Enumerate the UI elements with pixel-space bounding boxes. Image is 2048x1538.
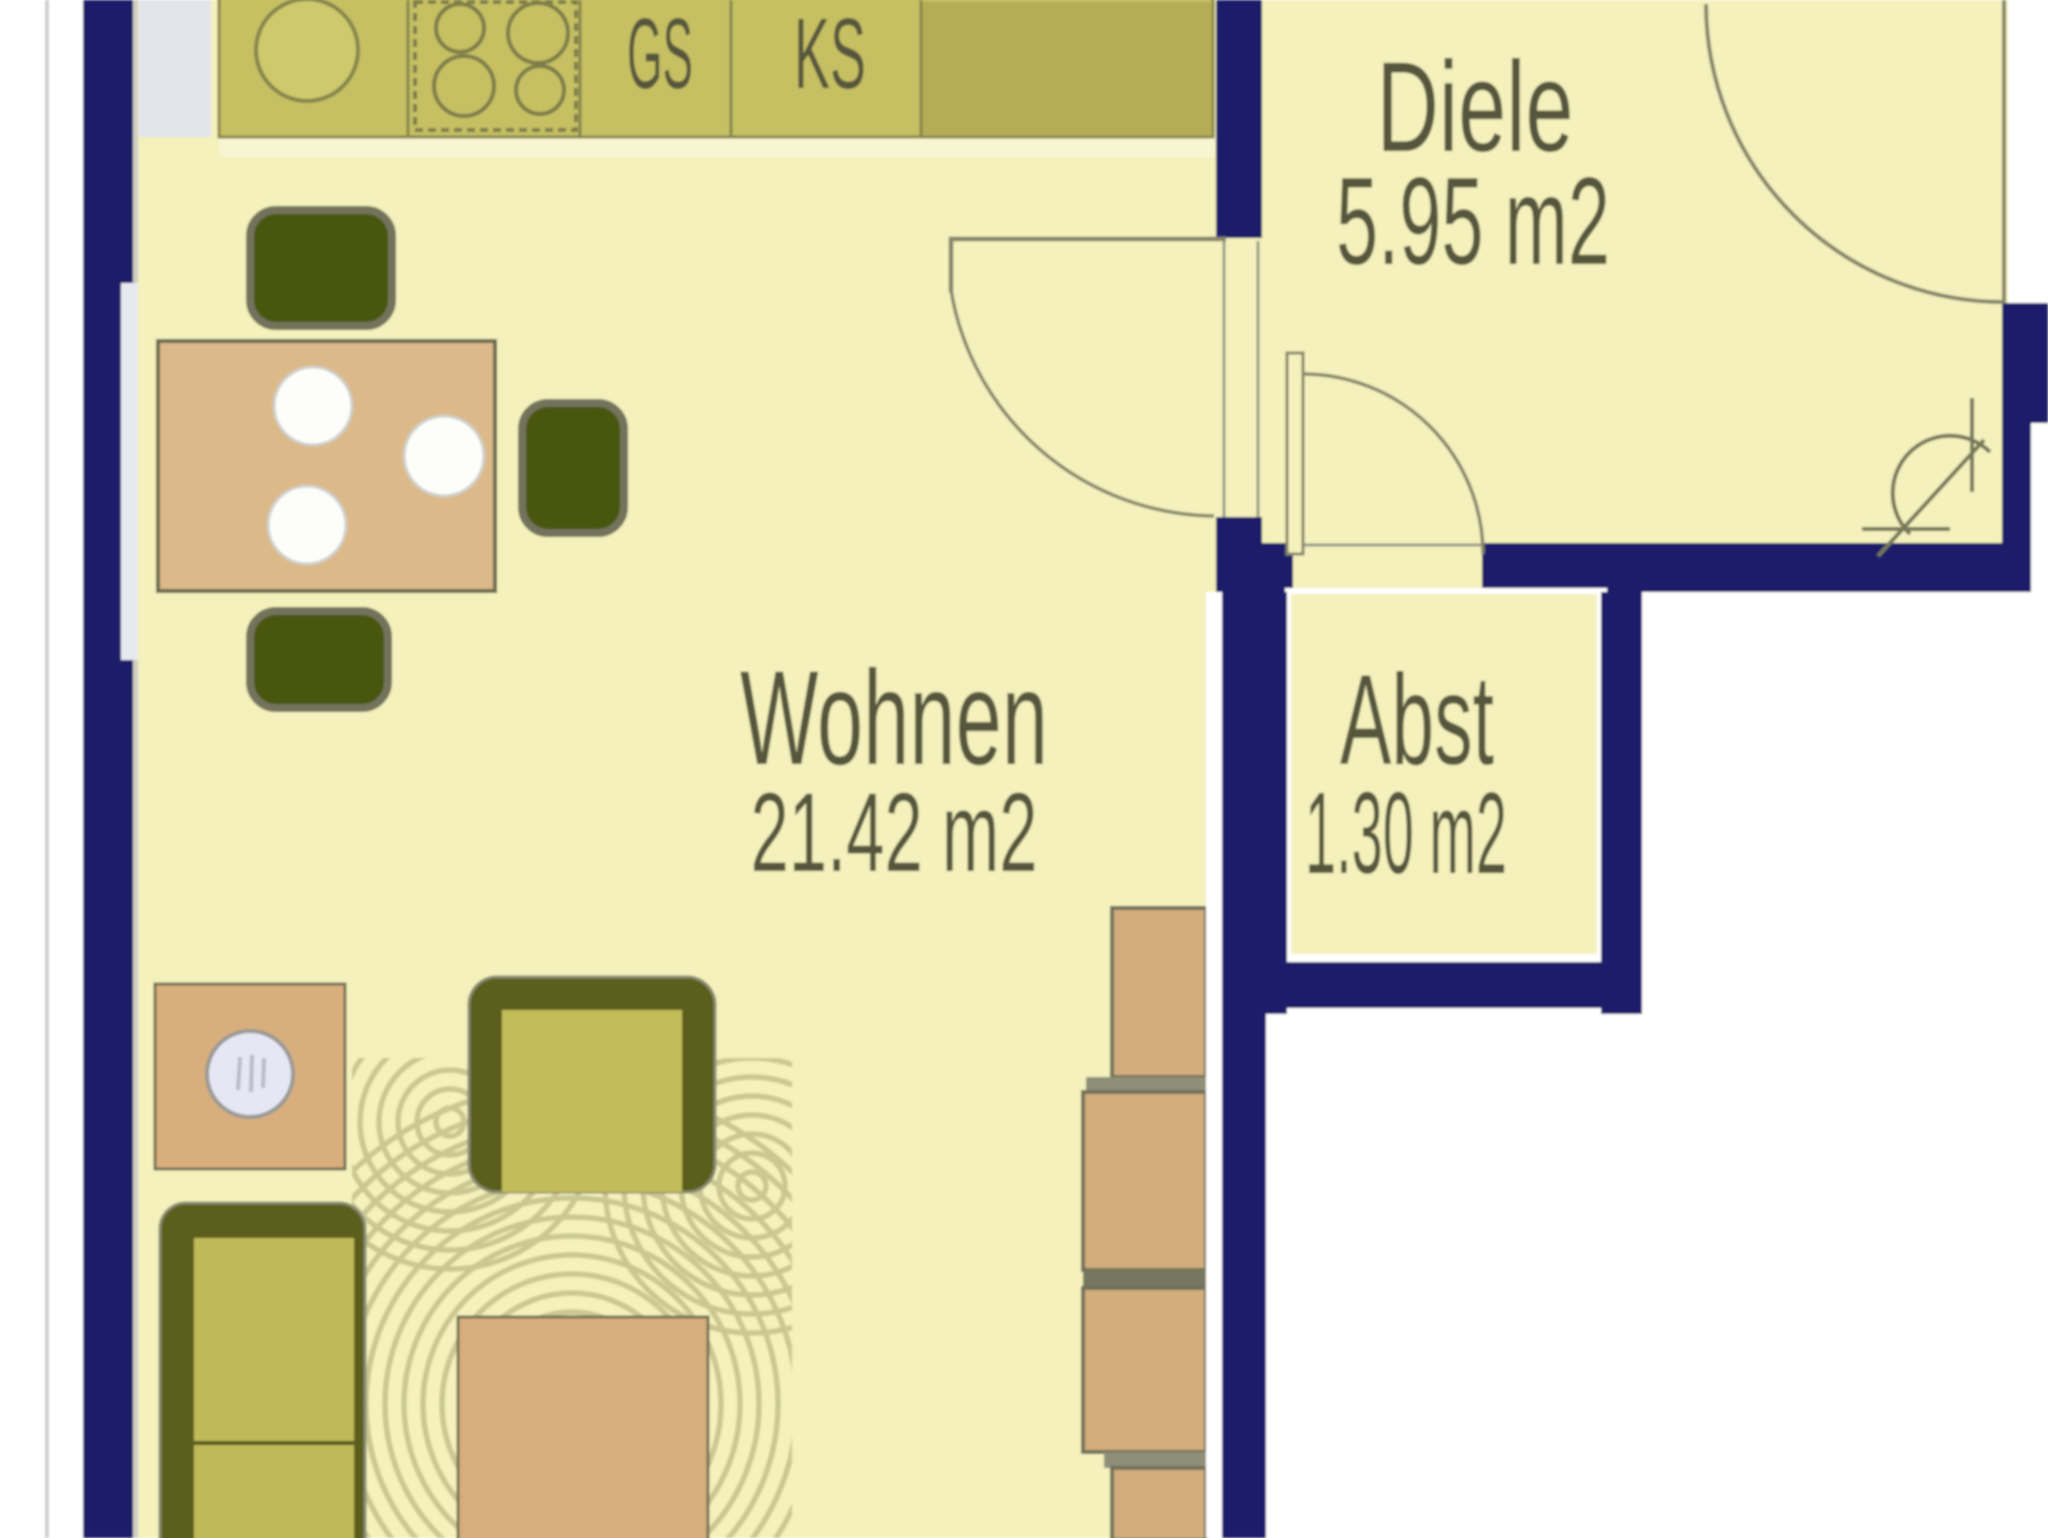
- svg-text:21.42 m2: 21.42 m2: [751, 770, 1038, 895]
- svg-text:1.30 m2: 1.30 m2: [1305, 768, 1507, 898]
- svg-text:KS: KS: [794, 0, 866, 110]
- svg-text:GS: GS: [627, 0, 693, 110]
- svg-text:5.95 m2: 5.95 m2: [1336, 153, 1610, 291]
